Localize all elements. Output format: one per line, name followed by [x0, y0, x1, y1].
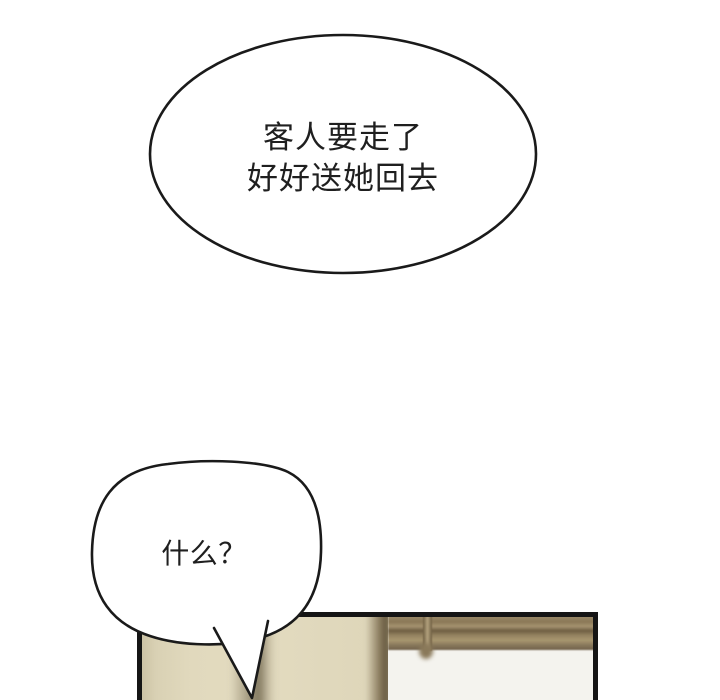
speech-text-top: 客人要走了 好好送她回去: [183, 117, 503, 199]
speech-bubble-tail: [214, 621, 268, 698]
speech-text-bottom-line1: 什么？: [104, 537, 304, 571]
speech-text-top-line1: 客人要走了: [183, 117, 503, 158]
speech-text-top-line2: 好好送她回去: [183, 158, 503, 199]
speech-bubbles-overlay: [0, 0, 720, 700]
comic-page: 客人要走了 好好送她回去 什么？: [0, 0, 720, 700]
speech-text-bottom: 什么？: [104, 537, 304, 571]
